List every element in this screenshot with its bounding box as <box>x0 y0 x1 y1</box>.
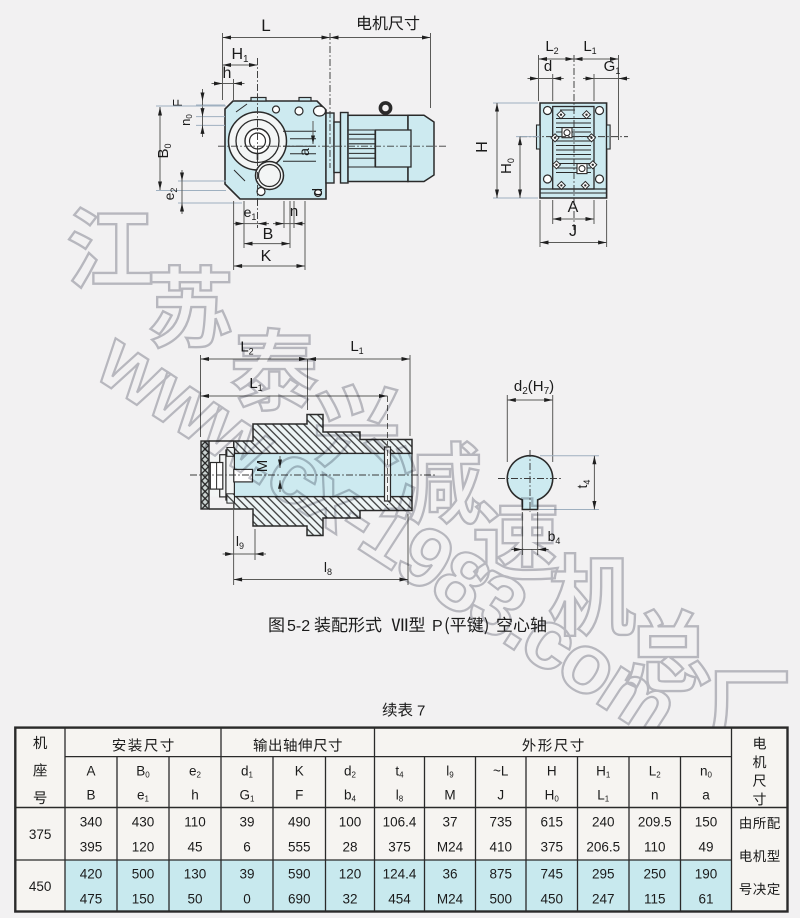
svg-text:A: A <box>568 199 579 216</box>
svg-text:420: 420 <box>80 867 103 882</box>
svg-text:d: d <box>309 188 325 196</box>
svg-text:d: d <box>544 58 552 75</box>
svg-text:500: 500 <box>132 867 155 882</box>
svg-text:110: 110 <box>644 840 666 855</box>
svg-text:39: 39 <box>239 867 254 882</box>
svg-text:395: 395 <box>80 840 103 855</box>
svg-text:39: 39 <box>239 815 254 830</box>
svg-text:430: 430 <box>132 815 155 830</box>
svg-text:240: 240 <box>592 815 615 830</box>
svg-text:B: B <box>263 226 274 243</box>
svg-text:209.5: 209.5 <box>638 815 672 830</box>
svg-text:106.4: 106.4 <box>383 815 417 830</box>
svg-text:6: 6 <box>243 840 251 855</box>
svg-text:875: 875 <box>489 867 512 882</box>
svg-text:49: 49 <box>698 840 713 855</box>
svg-text:J: J <box>497 788 504 803</box>
svg-text:450: 450 <box>29 879 52 894</box>
svg-text:590: 590 <box>288 867 311 882</box>
svg-text:M24: M24 <box>437 892 464 907</box>
svg-text:150: 150 <box>132 892 155 907</box>
svg-text:P: P <box>432 618 443 635</box>
svg-text:K: K <box>261 248 272 265</box>
svg-text:555: 555 <box>288 840 311 855</box>
svg-text:36: 36 <box>442 867 457 882</box>
svg-text:295: 295 <box>592 867 615 882</box>
svg-text:37: 37 <box>442 815 457 830</box>
svg-text:J: J <box>569 223 577 240</box>
svg-text:32: 32 <box>342 892 357 907</box>
svg-text:H: H <box>547 764 557 779</box>
svg-text:490: 490 <box>288 815 311 830</box>
svg-text:B: B <box>86 788 95 803</box>
svg-text:h: h <box>223 65 232 82</box>
svg-text:120: 120 <box>132 840 155 855</box>
svg-text:L: L <box>261 16 270 35</box>
svg-text:150: 150 <box>695 815 718 830</box>
svg-text:28: 28 <box>342 840 357 855</box>
svg-text:735: 735 <box>489 815 512 830</box>
svg-text:F: F <box>295 788 303 803</box>
svg-text:110: 110 <box>184 815 206 830</box>
svg-text:a: a <box>702 788 710 803</box>
svg-text:690: 690 <box>288 892 311 907</box>
svg-text:454: 454 <box>388 892 411 907</box>
svg-text:615: 615 <box>540 815 563 830</box>
svg-text:M24: M24 <box>437 840 464 855</box>
svg-text:375: 375 <box>388 840 411 855</box>
svg-text:5-2: 5-2 <box>287 618 310 635</box>
svg-text:7: 7 <box>417 703 425 720</box>
svg-text:745: 745 <box>540 867 563 882</box>
svg-text:K: K <box>295 764 304 779</box>
svg-text:475: 475 <box>80 892 103 907</box>
svg-text:H: H <box>474 141 491 153</box>
svg-text:h: h <box>191 788 199 803</box>
svg-text:130: 130 <box>184 867 207 882</box>
svg-text:~L: ~L <box>493 764 509 779</box>
svg-text:n: n <box>290 203 298 220</box>
svg-text:50: 50 <box>187 892 202 907</box>
svg-text:A: A <box>86 764 95 779</box>
svg-text:450: 450 <box>540 892 563 907</box>
svg-text:500: 500 <box>489 892 512 907</box>
svg-text:115: 115 <box>644 892 666 907</box>
svg-text:375: 375 <box>540 840 563 855</box>
svg-text:190: 190 <box>695 867 718 882</box>
svg-text:45: 45 <box>187 840 202 855</box>
svg-text:410: 410 <box>489 840 512 855</box>
svg-text:61: 61 <box>698 892 713 907</box>
svg-text:a: a <box>296 148 312 156</box>
svg-text:247: 247 <box>592 892 615 907</box>
svg-text:120: 120 <box>339 867 362 882</box>
svg-text:0: 0 <box>243 892 251 907</box>
svg-text:100: 100 <box>339 815 362 830</box>
svg-text:124.4: 124.4 <box>383 867 417 882</box>
svg-text:250: 250 <box>643 867 666 882</box>
svg-text:n: n <box>651 788 659 803</box>
svg-text:340: 340 <box>80 815 103 830</box>
svg-text:375: 375 <box>29 827 52 842</box>
svg-text:206.5: 206.5 <box>586 840 620 855</box>
svg-text:M: M <box>444 788 455 803</box>
